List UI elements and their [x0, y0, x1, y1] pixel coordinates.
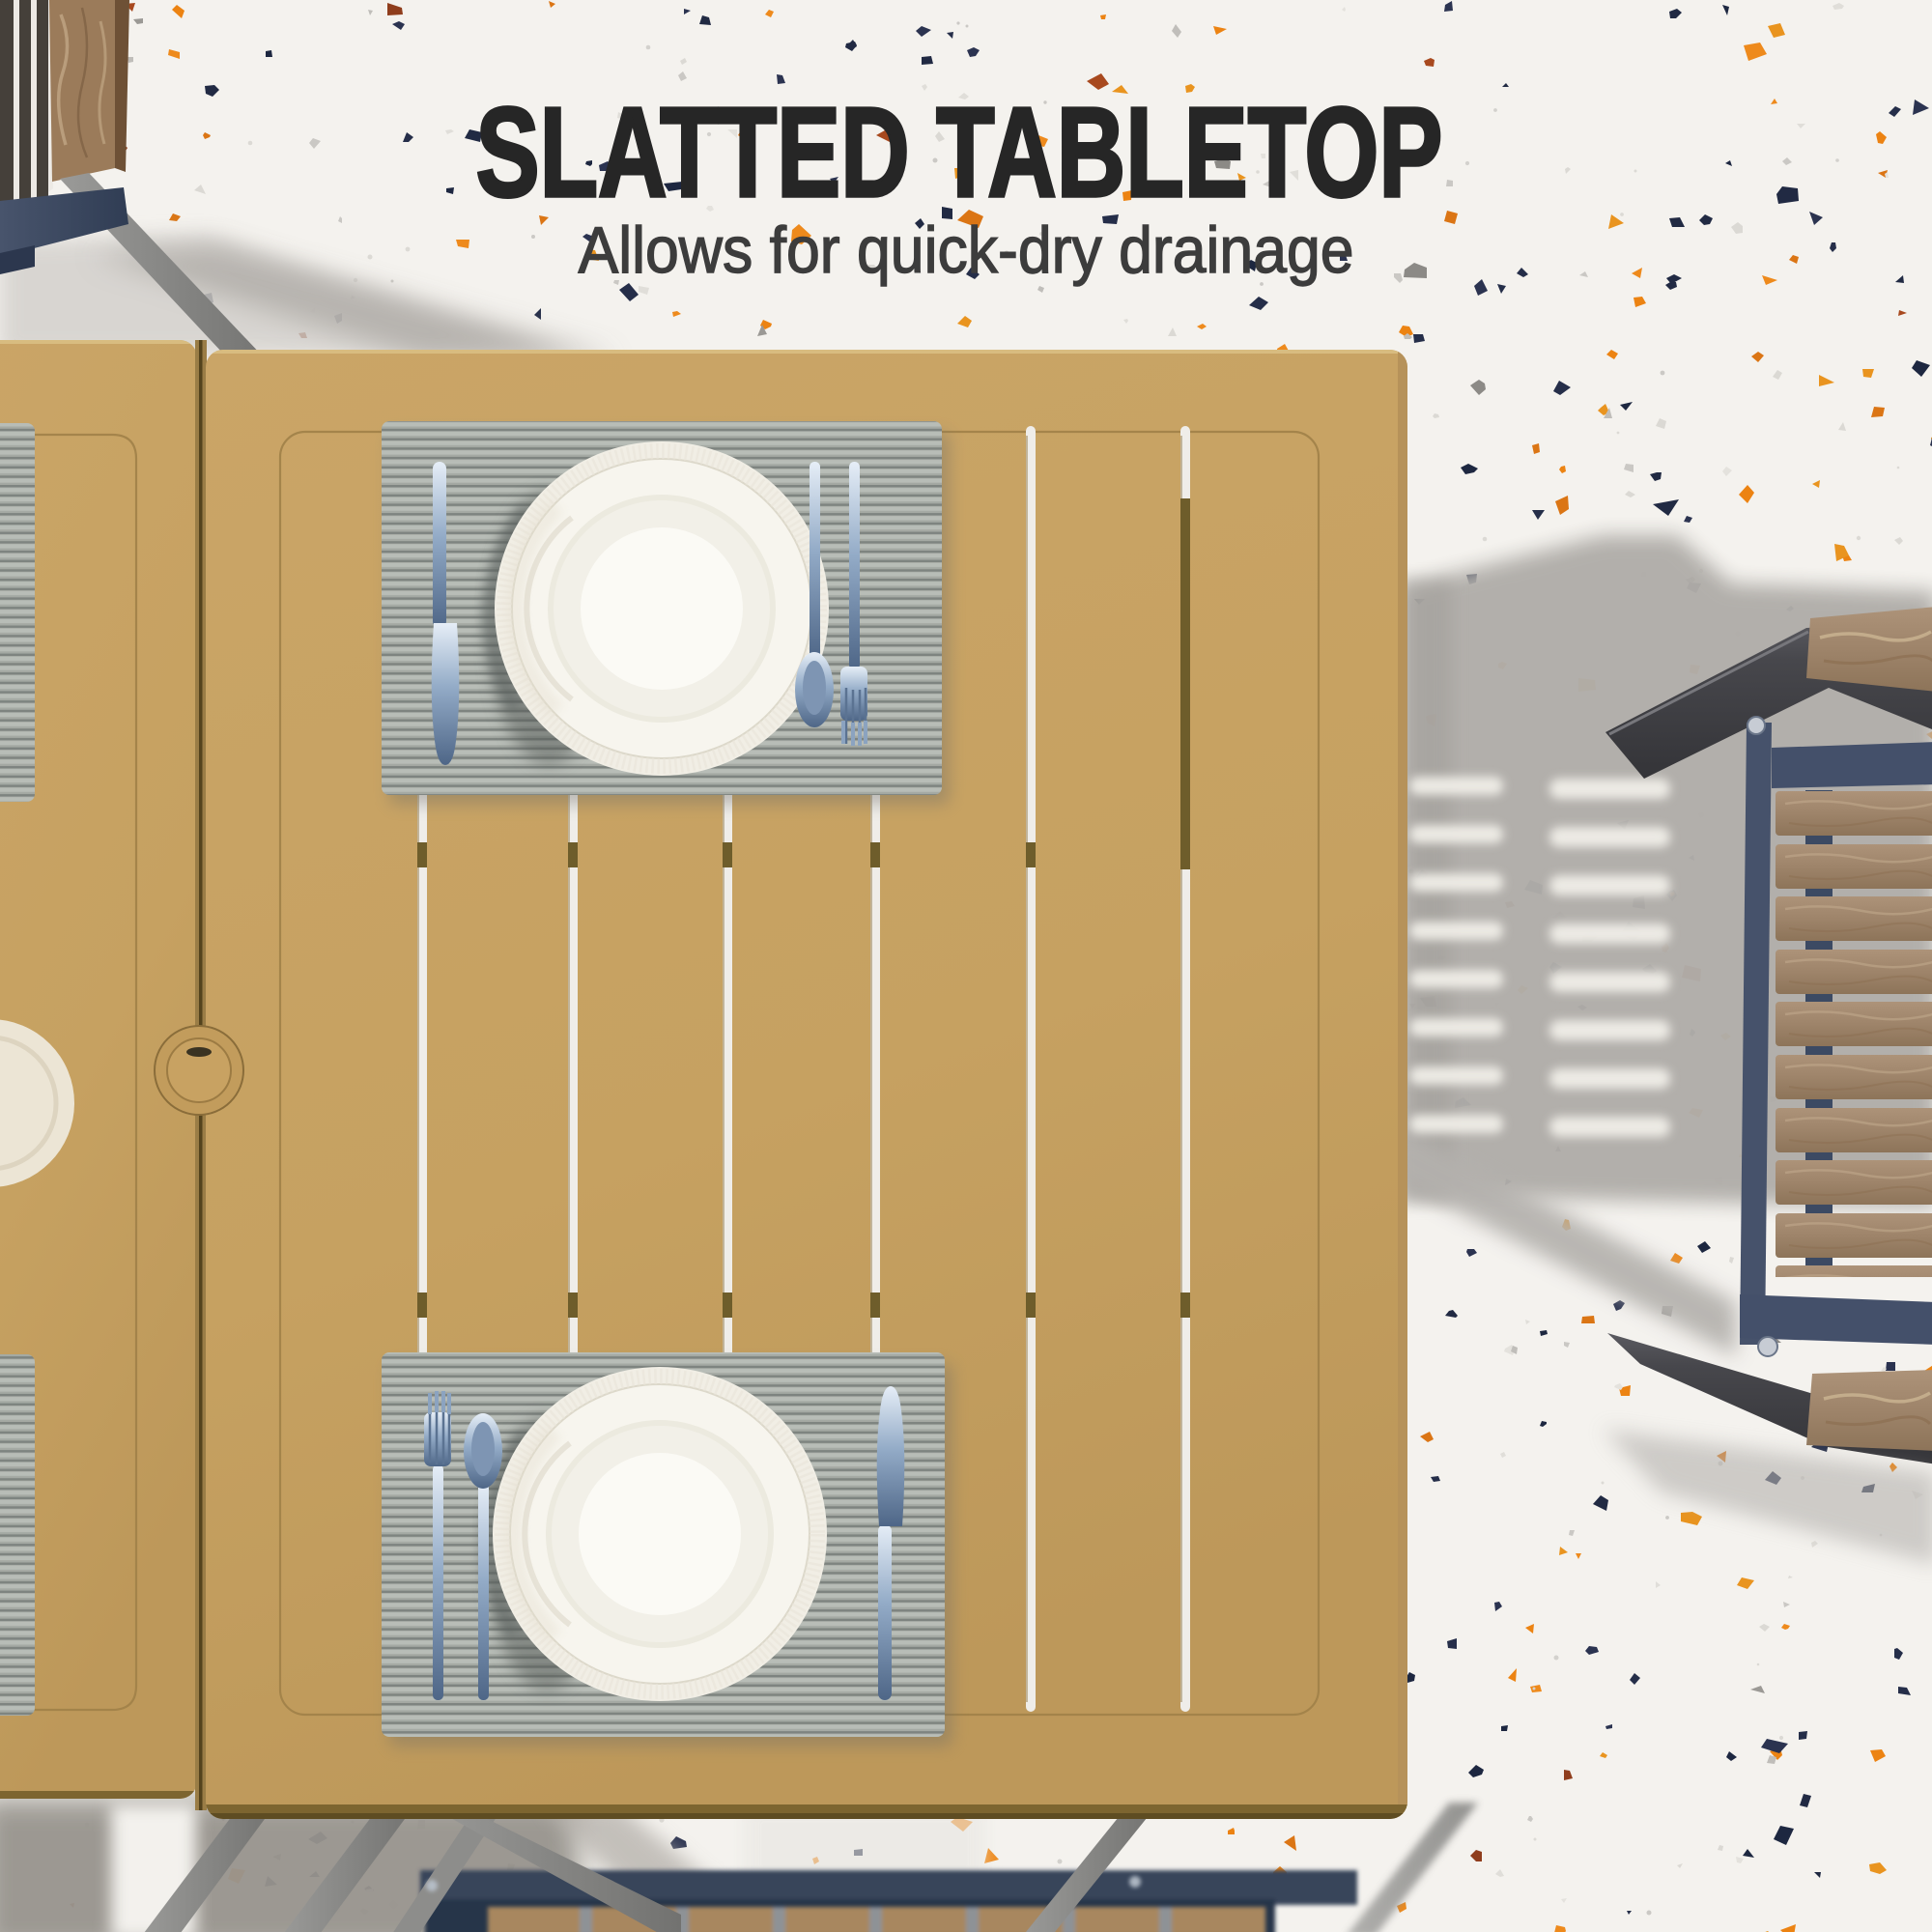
svg-text:Allows for quick-dry drainage: Allows for quick-dry drainage — [578, 213, 1353, 287]
svg-text:SLATTED TABLETOP: SLATTED TABLETOP — [476, 80, 1443, 223]
